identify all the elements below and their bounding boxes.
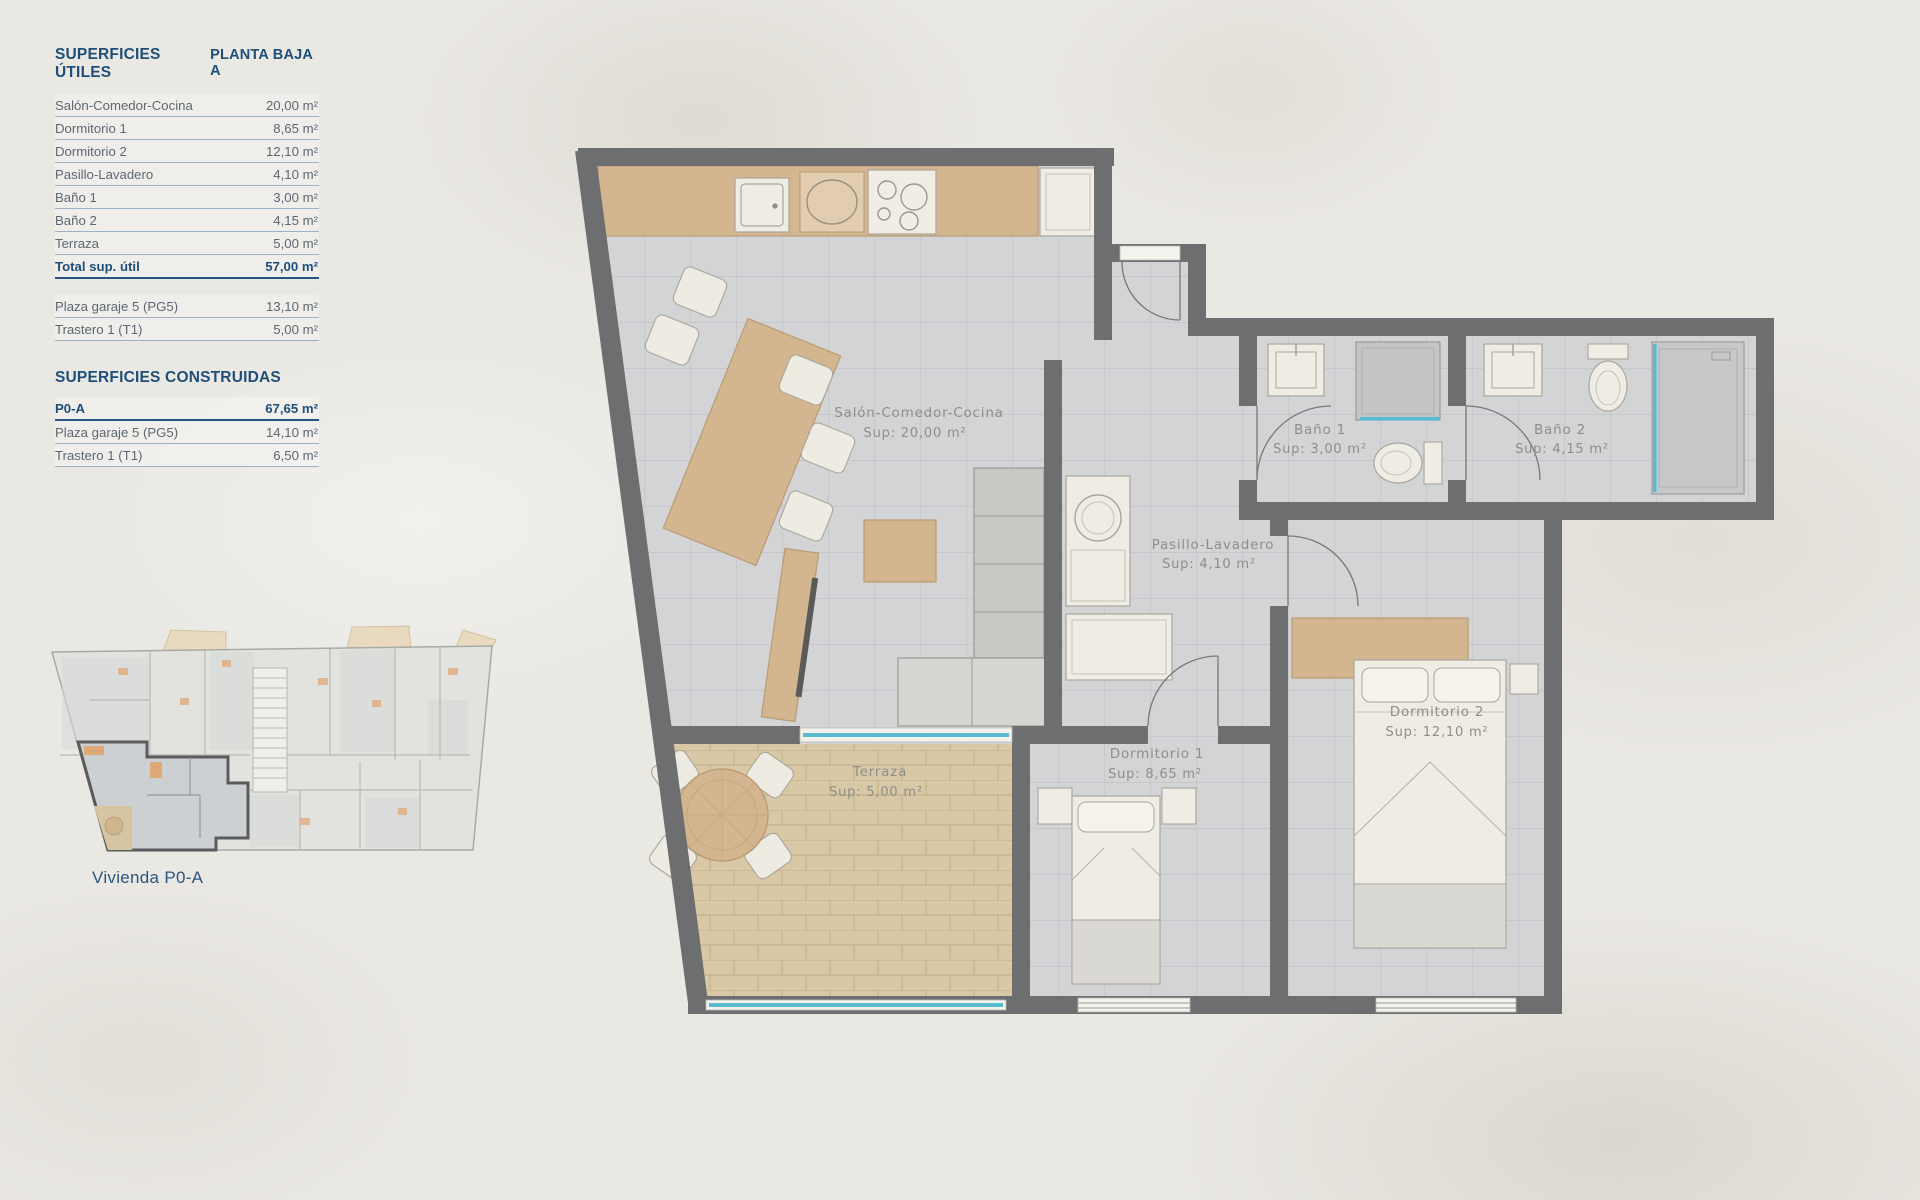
terrace-slider — [800, 728, 1012, 742]
room-sup-bano2: Sup: 4,15 m² — [1515, 442, 1609, 457]
room-label-pasillo: Pasillo-Lavadero — [1152, 537, 1275, 553]
room-label-bano1: Baño 1 — [1294, 422, 1346, 438]
room-sup-dorm1: Sup: 8,65 m² — [1108, 767, 1202, 782]
coffee-table — [864, 520, 936, 582]
nightstand — [1510, 664, 1538, 694]
main-floor-plan: Salón-Comedor-Cocina Sup: 20,00 m² Baño … — [0, 0, 1920, 1200]
shower — [1356, 342, 1440, 421]
bathroom-sink — [1484, 344, 1542, 396]
cutting-board — [800, 172, 864, 232]
wardrobe — [1066, 614, 1172, 680]
nightstand — [1038, 788, 1072, 824]
washing-machine — [1066, 476, 1130, 606]
cooktop — [868, 170, 936, 234]
room-label-salon: Salón-Comedor-Cocina — [834, 405, 1004, 421]
shower-tray — [1652, 342, 1744, 494]
nightstand — [1162, 788, 1196, 824]
toilet — [1588, 344, 1628, 411]
window — [1376, 998, 1516, 1012]
room-sup-salon: Sup: 20,00 m² — [864, 426, 967, 441]
room-label-dorm1: Dormitorio 1 — [1110, 746, 1204, 762]
fridge — [1040, 168, 1096, 236]
room-label-dorm2: Dormitorio 2 — [1390, 704, 1484, 720]
kitchen-area — [598, 166, 1096, 236]
bathroom-sink — [1268, 344, 1324, 396]
room-sup-bano1: Sup: 3,00 m² — [1273, 442, 1367, 457]
window — [1078, 998, 1190, 1012]
terrace-glass-front — [706, 1000, 1006, 1010]
room-sup-dorm2: Sup: 12,10 m² — [1386, 725, 1489, 740]
toilet — [1374, 442, 1442, 484]
room-sup-pasillo: Sup: 4,10 m² — [1162, 557, 1256, 572]
room-label-terraza: Terraza — [852, 764, 907, 780]
room-label-bano2: Baño 2 — [1534, 422, 1586, 438]
floorplan-sheet: { "left_panel": { "utiles": { "title": "… — [0, 0, 1920, 1200]
room-sup-terraza: Sup: 5,00 m² — [829, 785, 923, 800]
kitchen-sink — [735, 178, 789, 232]
single-bed — [1072, 796, 1160, 984]
